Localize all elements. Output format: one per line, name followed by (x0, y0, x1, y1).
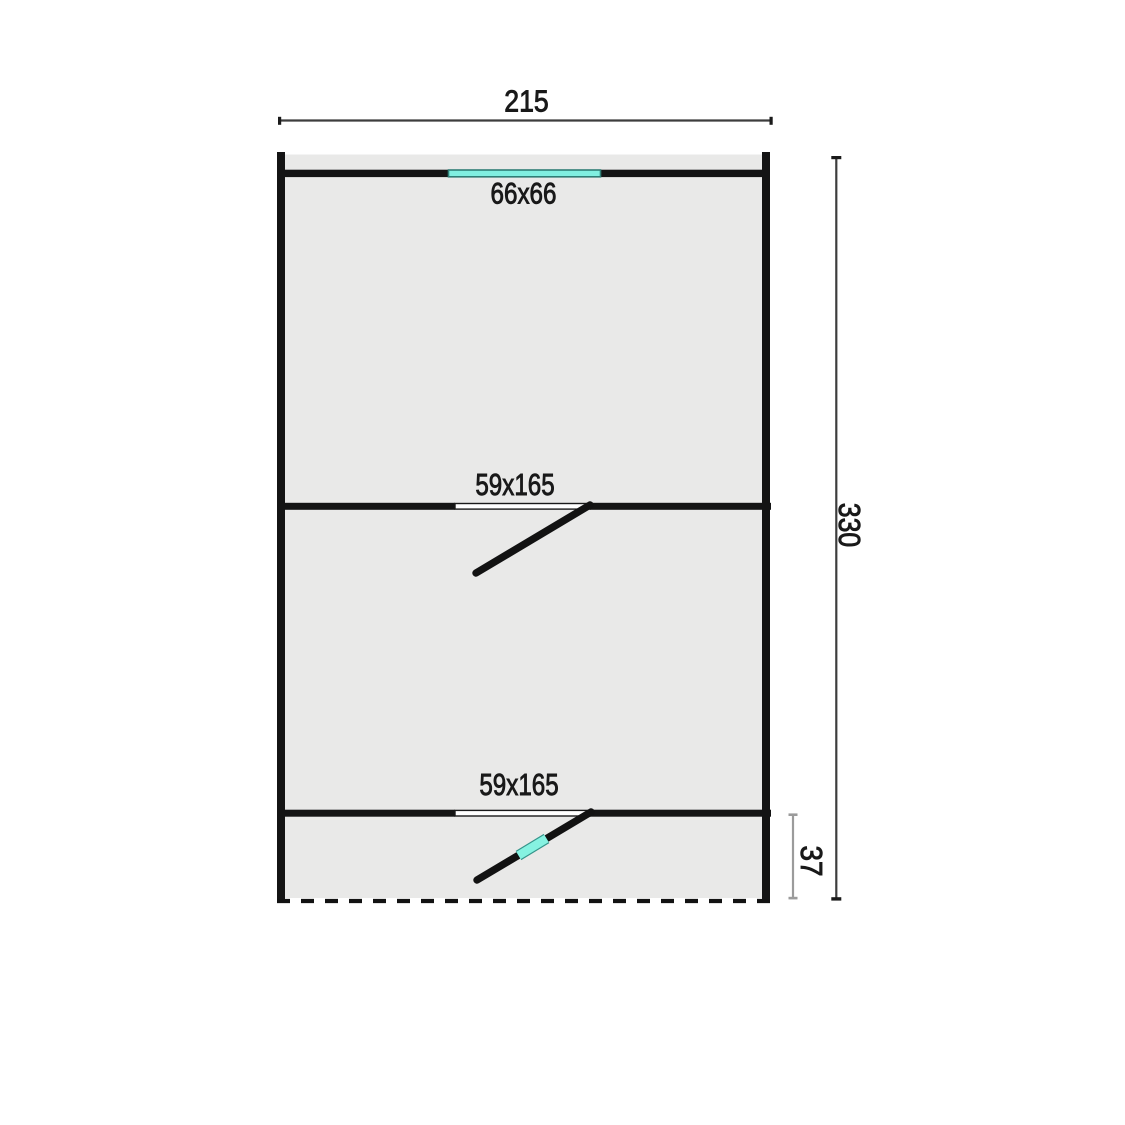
svg-text:59x165: 59x165 (475, 467, 554, 502)
svg-text:59x165: 59x165 (479, 767, 558, 802)
svg-text:330: 330 (831, 503, 865, 547)
svg-text:66x66: 66x66 (491, 177, 557, 210)
svg-text:37: 37 (794, 845, 829, 876)
svg-text:215: 215 (504, 85, 548, 119)
